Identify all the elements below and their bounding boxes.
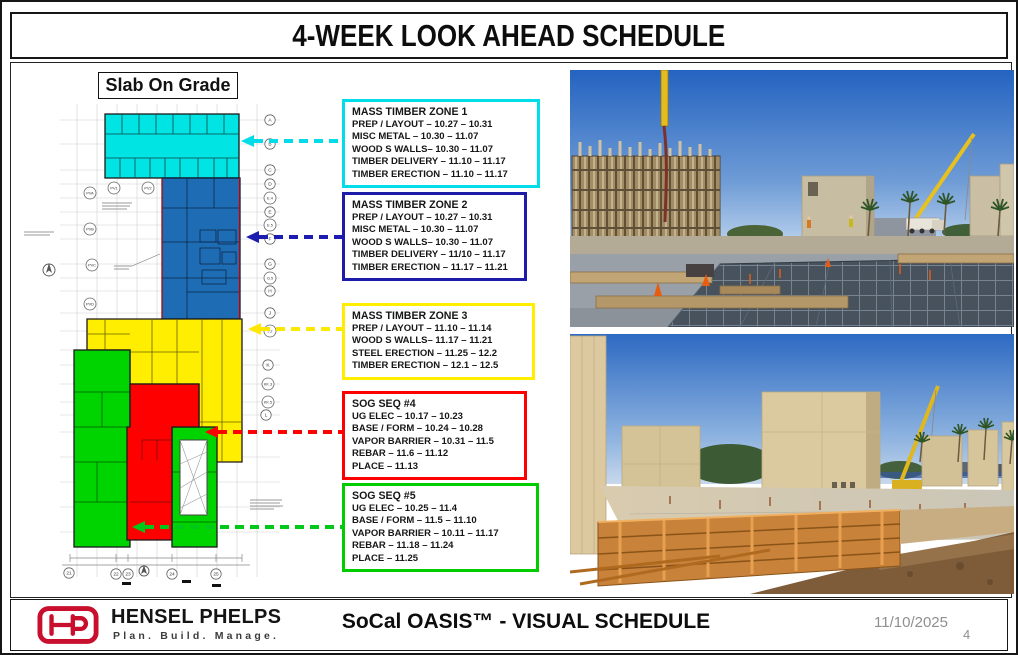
box-title: MASS TIMBER ZONE 3: [352, 309, 525, 323]
leader-arrow-zone1: [241, 135, 343, 147]
grid-bubble-label: PVB: [86, 227, 94, 231]
leader-arrow-zone2: [246, 231, 343, 243]
north-arrow-icon: [43, 263, 55, 276]
grid-bubble-label: C: [268, 167, 272, 173]
box-line: REBAR – 11.18 – 11.24: [352, 540, 529, 552]
box-title: SOG SEQ #5: [352, 489, 529, 503]
grid-bubble-label: PV2: [144, 186, 151, 190]
box-line: WOOD S WALLS– 11.17 – 11.21: [352, 335, 525, 347]
box-line: TIMBER ERECTION – 11.10 – 11.17: [352, 169, 530, 181]
box-line: PLACE – 11.13: [352, 461, 517, 473]
box-line: PREP / LAYOUT – 10.27 – 10.31: [352, 119, 530, 131]
stair-shaft-hatched: [180, 440, 207, 515]
equipment: [686, 264, 714, 277]
slide: 4-WEEK LOOK AHEAD SCHEDULE Slab On Grade: [0, 0, 1018, 655]
photo-bottom-construction-site: [570, 334, 1014, 594]
schedule-box-sog-seq-5: SOG SEQ #5 UG ELEC – 10.25 – 11.4 BASE /…: [342, 483, 539, 572]
schedule-box-mass-timber-zone-1: MASS TIMBER ZONE 1 PREP / LAYOUT – 10.27…: [342, 99, 540, 188]
midground-strip: [570, 236, 1014, 256]
grid-bubble-label: E.4: [267, 196, 273, 200]
box-line: VAPOR BARRIER – 10.31 – 11.5: [352, 436, 517, 448]
slide-date: 11/10/2025: [856, 614, 966, 631]
box-line: TIMBER DELIVERY – 11/10 – 11.17: [352, 249, 517, 261]
dimension-lines: [62, 554, 250, 565]
grid-bubble-label: 21: [66, 570, 72, 576]
grid-bubble-label: F: [269, 236, 272, 242]
box-line: WOOD S WALLS– 10.30 – 11.07: [352, 237, 517, 249]
key-plan-compass-icon: [139, 565, 149, 576]
schedule-box-mass-timber-zone-2: MASS TIMBER ZONE 2 PREP / LAYOUT – 10.27…: [342, 192, 527, 281]
grid-bubble-label: KK.5: [264, 400, 272, 404]
match-line-ticks: [122, 580, 221, 587]
box-line: STEEL ERECTION – 11.25 – 12.2: [352, 348, 525, 360]
zone-mass-timber-2: [162, 178, 240, 319]
box-line: MISC METAL – 10.30 – 11.07: [352, 224, 517, 236]
grid-bubble-label: 24: [169, 571, 175, 577]
leader-arrow-zone3: [248, 323, 343, 335]
box-line: BASE / FORM – 10.24 – 10.28: [352, 423, 517, 435]
grid-bubble-label: PVD: [86, 302, 94, 306]
box-line: REBAR – 11.6 – 11.12: [352, 448, 517, 460]
box-line: WOOD S WALLS– 10.30 – 11.07: [352, 144, 530, 156]
grid-bubble-label: 23: [125, 571, 131, 577]
box-line: PREP / LAYOUT – 10.27 – 10.31: [352, 212, 517, 224]
box-line: PREP / LAYOUT – 11.10 – 11.14: [352, 323, 525, 335]
grid-bubble-label: E.5: [267, 223, 273, 227]
box-line: MISC METAL – 10.30 – 11.07: [352, 131, 530, 143]
grid-bubble-label: G: [268, 261, 272, 267]
grid-bubble-label: E: [268, 209, 271, 215]
schedule-box-sog-seq-4: SOG SEQ #4 UG ELEC – 10.17 – 10.23 BASE …: [342, 391, 527, 480]
photo-top-construction-site: [570, 70, 1014, 327]
plan-heading: Slab On Grade: [98, 72, 238, 99]
grid-bubble-label: 22: [113, 571, 119, 577]
page-number: 4: [963, 627, 970, 642]
zone-mass-timber-1: [105, 114, 239, 178]
box-title: MASS TIMBER ZONE 1: [352, 105, 530, 119]
box-line: TIMBER DELIVERY – 11.10 – 11.17: [352, 156, 530, 168]
grid-bubble-label: PV1: [110, 186, 117, 190]
grid-bubble-label: KK.3: [264, 382, 272, 386]
box-line: UG ELEC – 10.17 – 10.23: [352, 411, 517, 423]
box-line: UG ELEC – 10.25 – 11.4: [352, 503, 529, 515]
box-title: SOG SEQ #4: [352, 397, 517, 411]
grid-bubble-label: PVC: [88, 263, 96, 267]
box-title: MASS TIMBER ZONE 2: [352, 198, 517, 212]
box-line: VAPOR BARRIER – 10.11 – 11.17: [352, 528, 529, 540]
box-line: BASE / FORM – 11.5 – 11.10: [352, 515, 529, 527]
grid-bubble-label: H: [268, 288, 272, 294]
box-line: PLACE – 11.25: [352, 553, 529, 565]
grid-bubble-label: G.5: [267, 276, 273, 280]
schedule-box-mass-timber-zone-3: MASS TIMBER ZONE 3 PREP / LAYOUT – 11.10…: [342, 303, 535, 380]
box-line: TIMBER ERECTION – 11.17 – 11.21: [352, 262, 517, 274]
grid-bubble-label: PVA: [86, 191, 94, 195]
grid-bubble-label: 25: [213, 571, 219, 577]
grid-bubble-label: D: [268, 181, 272, 187]
grid-bubble-label: L: [265, 412, 268, 418]
box-line: TIMBER ERECTION – 12.1 – 12.5: [352, 360, 525, 372]
